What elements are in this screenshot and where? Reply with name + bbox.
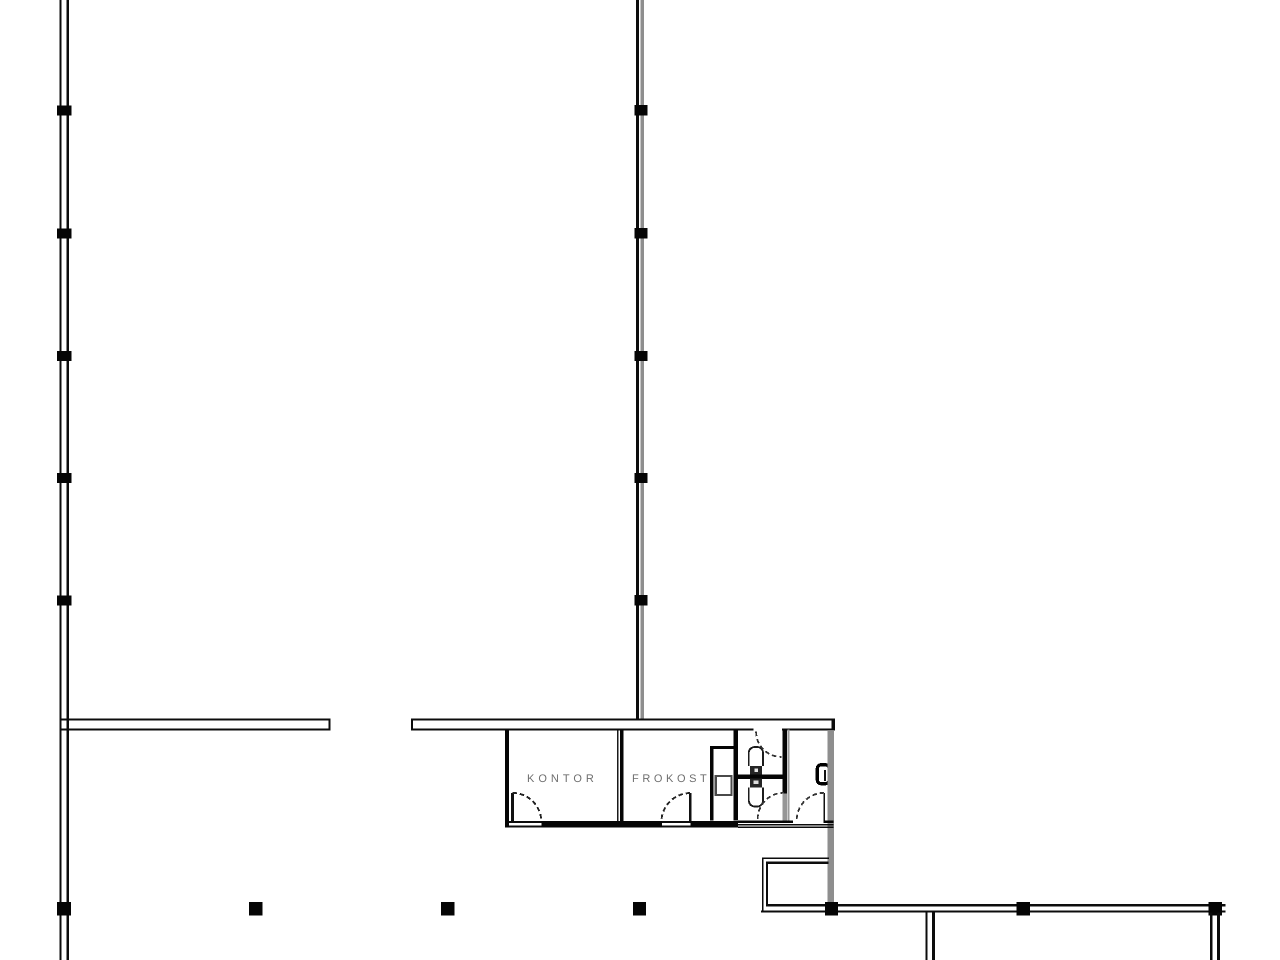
svg-text:FROKOST: FROKOST (632, 773, 710, 785)
svg-text:KONTOR: KONTOR (527, 773, 598, 785)
